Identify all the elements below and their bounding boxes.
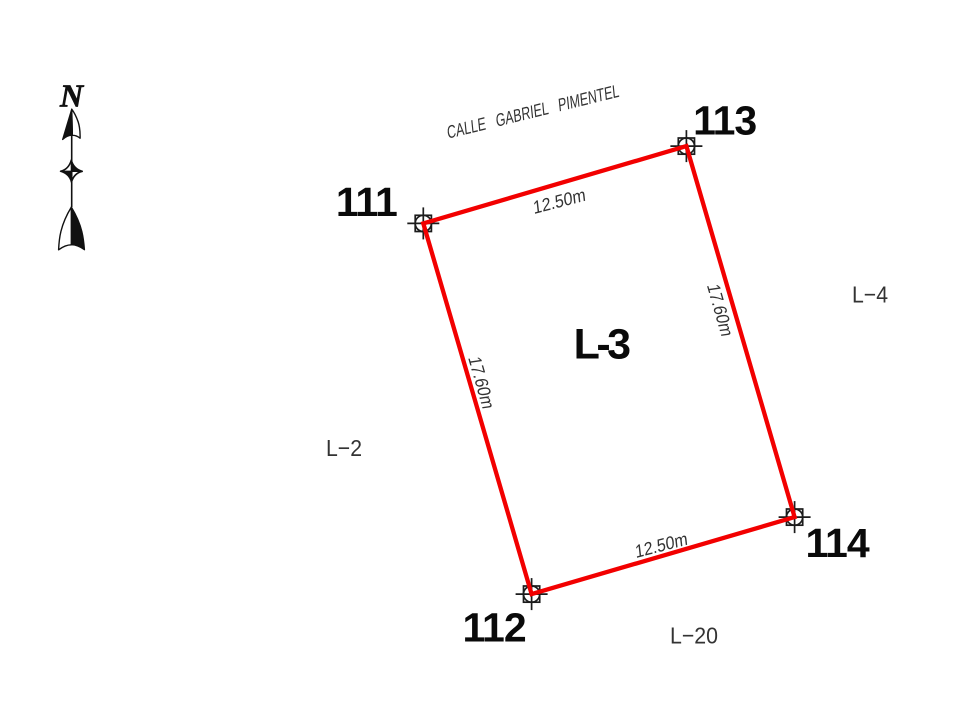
svg-text:112: 112 <box>463 605 526 651</box>
svg-text:L-3: L-3 <box>574 321 631 369</box>
svg-text:114: 114 <box>806 520 870 566</box>
svg-text:L−2: L−2 <box>326 435 362 461</box>
svg-text:L−4: L−4 <box>852 282 888 308</box>
svg-text:113: 113 <box>693 98 756 144</box>
svg-text:111: 111 <box>336 179 397 225</box>
svg-text:L−20: L−20 <box>670 623 718 649</box>
svg-text:N: N <box>59 77 85 113</box>
